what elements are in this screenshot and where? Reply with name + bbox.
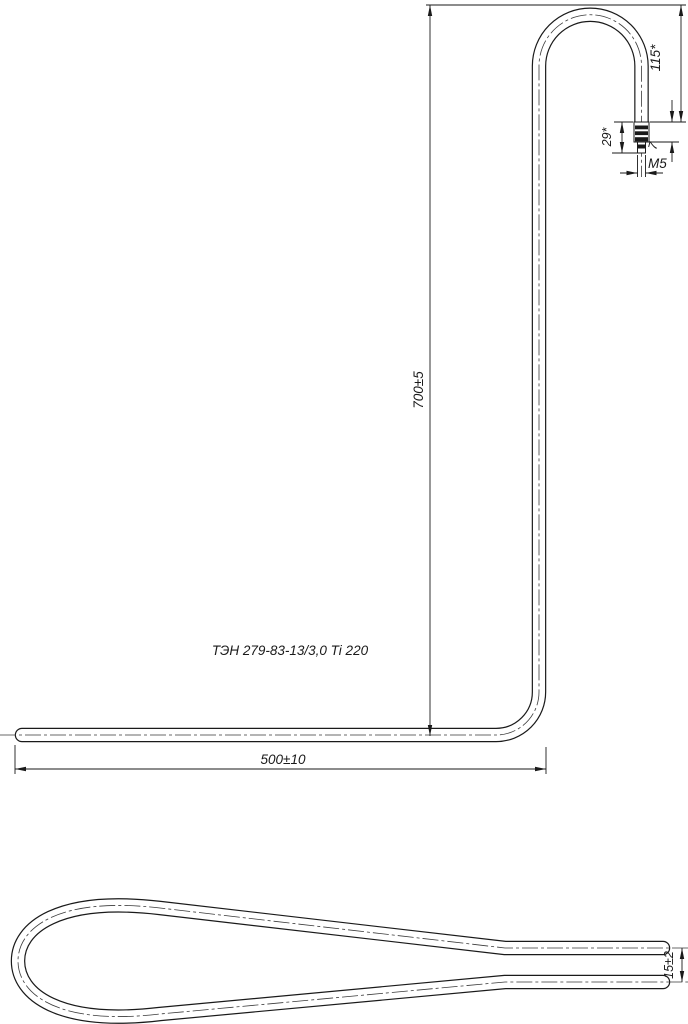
front-view	[0, 15, 649, 735]
dim-total-height-label: 700±5	[411, 371, 426, 409]
insulator-rib	[635, 131, 648, 135]
dimension-thread: M5	[620, 155, 667, 177]
dimension-pin-spacing: 15±2	[662, 948, 684, 982]
heater-tube-outline	[22, 15, 642, 735]
stud-band	[638, 145, 646, 149]
dim-total-width-label: 500±10	[261, 752, 306, 767]
dimension-total-width: 500±10	[15, 745, 546, 774]
front-view-dimensions: 700±5 115* 29* 7	[15, 5, 686, 774]
technical-drawing: 700±5 115* 29* 7	[0, 0, 688, 1024]
part-designation-label: ТЭН 279-83-13/3,0 Ti 220	[212, 643, 369, 658]
insulator-rib	[635, 126, 648, 130]
dimension-hook-drop: 115*	[648, 5, 686, 122]
heater-tube-fill	[22, 15, 642, 735]
dim-pin-spacing-label: 15±2	[662, 951, 676, 979]
dim-insulator-length-label: 7	[645, 140, 661, 151]
dimension-total-height: 700±5	[411, 5, 432, 736]
dim-terminal-length-label: 29*	[600, 126, 614, 147]
top-view: 15±2	[18, 905, 688, 1016]
insulator-rib	[635, 137, 648, 141]
dimension-insulator-length: 7	[645, 100, 679, 162]
dim-thread-label: M5	[648, 156, 667, 171]
dim-hook-drop-label: 115*	[648, 44, 663, 72]
